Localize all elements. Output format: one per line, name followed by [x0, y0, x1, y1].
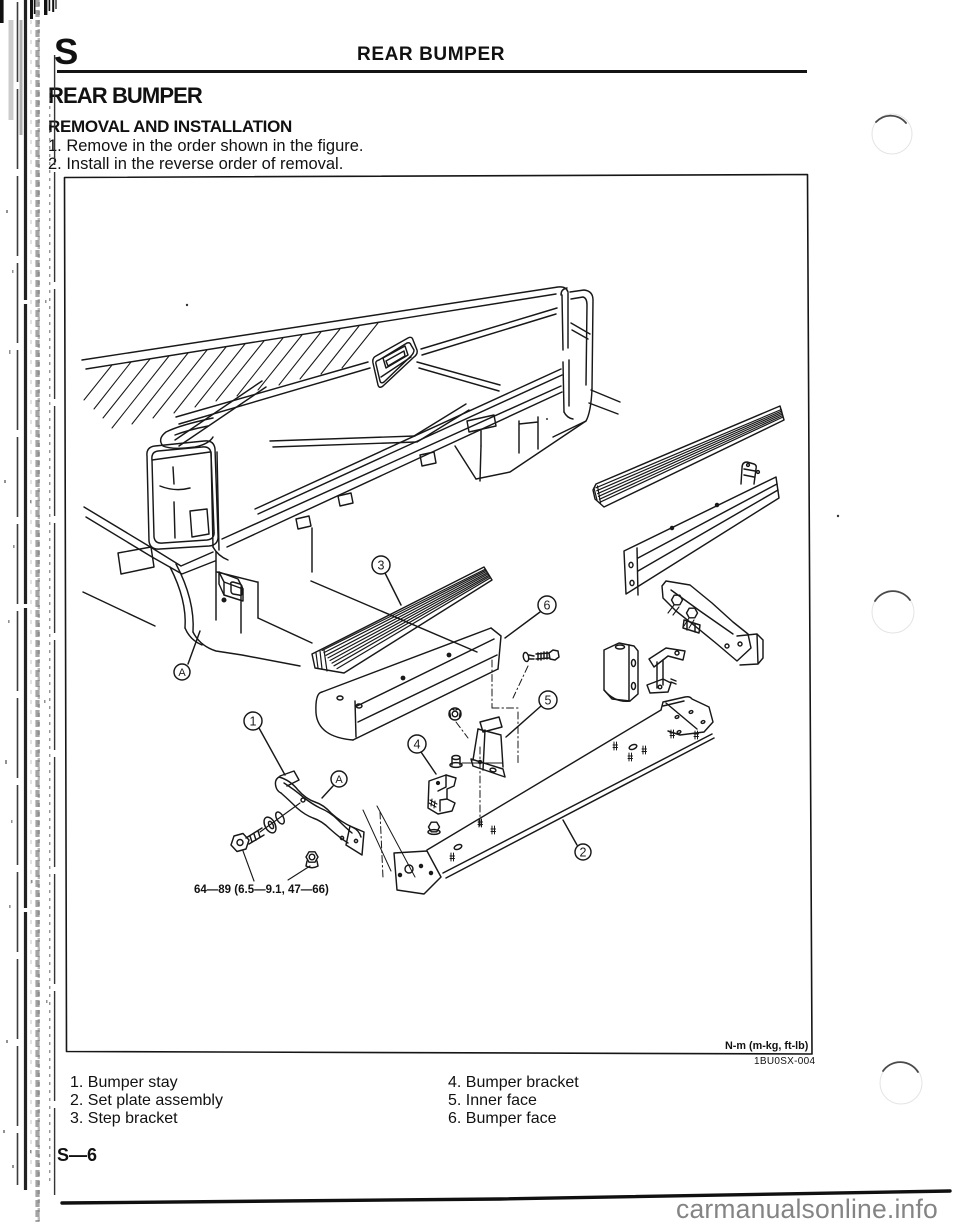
svg-text:3: 3	[378, 559, 385, 573]
svg-text:4: 4	[414, 738, 421, 752]
svg-text:1: 1	[250, 715, 257, 729]
svg-text:2: 2	[580, 846, 587, 860]
svg-text:A: A	[178, 667, 186, 679]
svg-text:5: 5	[545, 694, 552, 708]
svg-text:A: A	[335, 774, 343, 786]
svg-text:6: 6	[544, 599, 551, 613]
